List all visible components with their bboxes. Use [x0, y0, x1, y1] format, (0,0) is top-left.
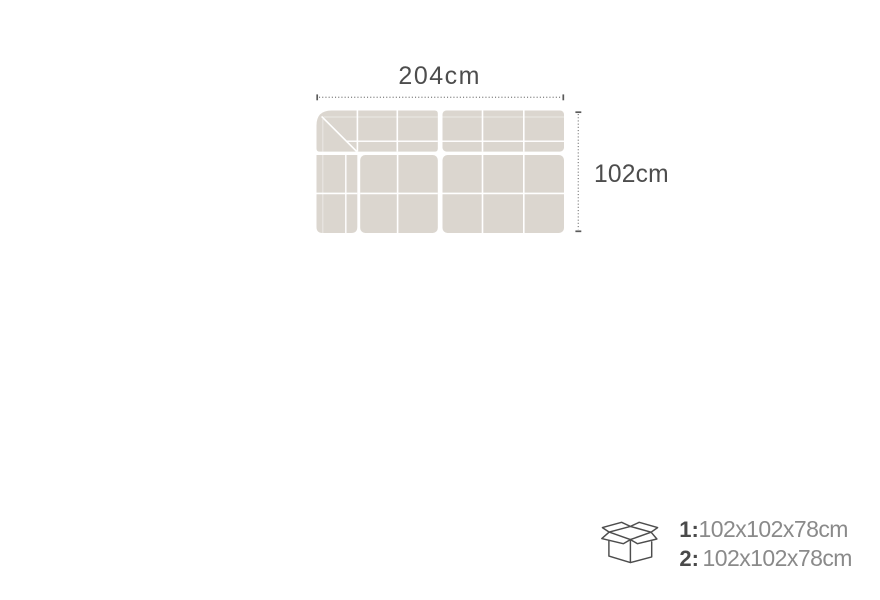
svg-text:2:: 2: — [679, 546, 699, 571]
svg-text:102cm: 102cm — [594, 161, 669, 188]
svg-text:204cm: 204cm — [398, 62, 481, 90]
svg-text:102x102x78cm: 102x102x78cm — [703, 545, 852, 571]
svg-text:1:: 1: — [679, 517, 699, 542]
svg-text:102x102x78cm: 102x102x78cm — [699, 516, 848, 542]
